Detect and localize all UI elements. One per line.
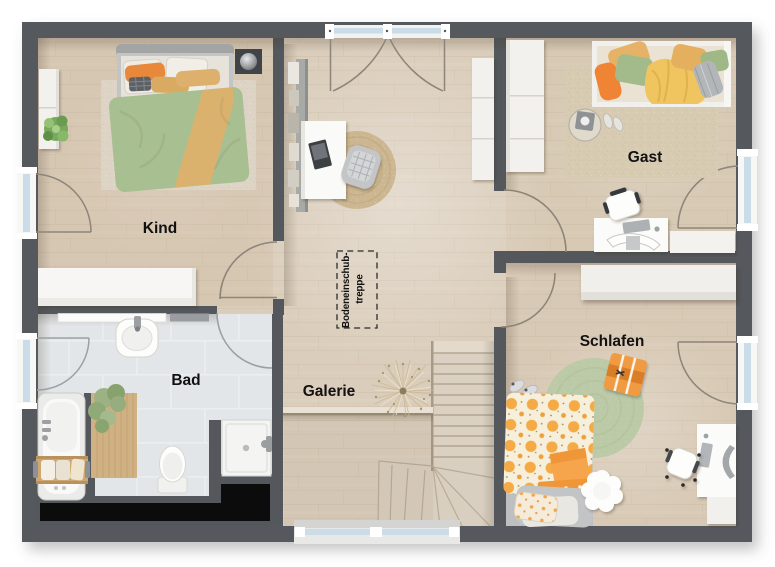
svg-text:Gast: Gast (628, 149, 662, 166)
svg-text:Bad: Bad (171, 372, 200, 389)
svg-text:Galerie: Galerie (303, 383, 356, 400)
svg-text:Kind: Kind (143, 220, 177, 237)
svg-text:Schlafen: Schlafen (580, 333, 645, 350)
